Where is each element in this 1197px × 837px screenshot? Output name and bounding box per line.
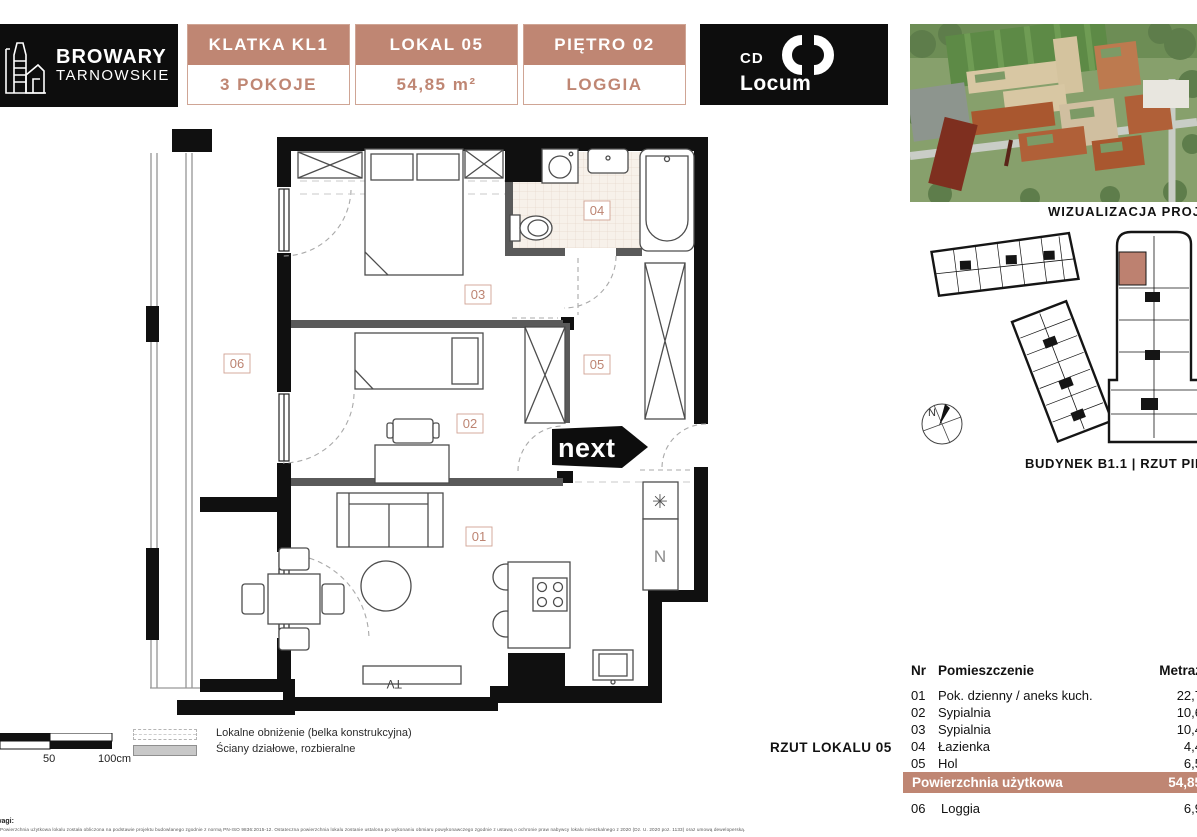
row-area: 4,4 [1137, 739, 1197, 754]
compass-icon: N [918, 398, 966, 448]
scale-50-label: 50 [43, 753, 55, 765]
room-label-04: 04 [590, 203, 604, 218]
row-area: 10,6 [1137, 705, 1197, 720]
visualization-caption: WIZUALIZACJA PROJEKTU [1048, 204, 1197, 219]
cd-locum-mark-icon [770, 34, 848, 76]
usable-area-label: Powierzchnia użytkowa [912, 775, 1063, 790]
fridge-symbol: ✳ [652, 492, 668, 513]
row-area: 10,4 [1137, 722, 1197, 737]
room-label-05: 05 [590, 357, 604, 372]
building-caption: BUDYNEK B1.1 | RZUT PIĘTRA 02 [1025, 456, 1197, 471]
row-area: 6,5 [1137, 756, 1197, 771]
appliance-symbol: N [654, 547, 666, 566]
header-box-lokal: LOKAL 05 54,85 m² [355, 24, 518, 105]
room-label-01: 01 [472, 529, 486, 544]
row-nr: 03 [911, 722, 937, 737]
loggia-label: LOGGIA [524, 65, 685, 104]
row-name: Łazienka [938, 739, 1143, 754]
room-label-06: 06 [230, 356, 244, 371]
pokoje-label: 3 POKOJE [188, 65, 349, 104]
header-box-klatka: KLATKA KL1 3 POKOJE [187, 24, 350, 105]
row-name: Hol [938, 756, 1143, 771]
header-name: Pomieszczenie [938, 663, 1143, 678]
legend-beam-swatch [133, 729, 197, 740]
row-name: Sypialnia [938, 705, 1143, 720]
floor-plan: TV ✳ N 01 02 03 04 05 06 next [125, 118, 720, 723]
pietro-label: PIĘTRO 02 [524, 25, 685, 65]
room-label-02: 02 [463, 416, 477, 431]
row-nr: 04 [911, 739, 937, 754]
notes-label: Uwagi: [0, 818, 14, 825]
usable-area-bar: Powierzchnia użytkowa 54,85 [903, 772, 1197, 793]
legend-beam-label: Lokalne obniżenie (belka konstrukcyjna) [216, 727, 412, 739]
header-area: Metraż [1137, 663, 1197, 678]
logo-line2: TARNOWSKIE [56, 68, 170, 84]
row-area: 6,9 [1137, 801, 1197, 816]
legend-partition-swatch [133, 745, 197, 756]
compass-n-label: N [928, 407, 936, 419]
row-nr: 02 [911, 705, 937, 720]
room-label-03: 03 [471, 287, 485, 302]
locum-text: Locum [740, 72, 811, 96]
klatka-label: KLATKA KL1 [188, 25, 349, 65]
floorplan-sheet: BROWARY TARNOWSKIE KLATKA KL1 3 POKOJE L… [0, 0, 1197, 837]
cd-locum-logo: CD Locum [700, 24, 888, 105]
tv-label: TV [387, 677, 402, 691]
row-name: Pok. dzienny / aneks kuch. [938, 688, 1143, 703]
scale-bar [0, 733, 130, 751]
plan-caption: RZUT LOKALU 05 [770, 740, 892, 755]
aerial-visualization [910, 24, 1197, 202]
area-label: 54,85 m² [356, 65, 517, 104]
usable-area-value: 54,85 [1137, 775, 1197, 790]
row-name: Loggia [941, 801, 1146, 816]
next-logo-text: next [558, 433, 616, 463]
brewery-icon [0, 35, 52, 97]
row-name: Sypialnia [938, 722, 1143, 737]
row-area: 22,7 [1137, 688, 1197, 703]
cd-text: CD [740, 50, 764, 67]
logo-line1: BROWARY [56, 47, 170, 68]
notes-text: Powierzchnia użytkowa lokalu została obl… [0, 827, 880, 832]
scale-100-label: 100cm [98, 753, 131, 765]
lokal-label: LOKAL 05 [356, 25, 517, 65]
header-nr: Nr [911, 663, 937, 678]
row-nr: 01 [911, 688, 937, 703]
legend-partition-label: Ściany działowe, rozbieralne [216, 743, 355, 755]
row-nr: 05 [911, 756, 937, 771]
header-box-pietro: PIĘTRO 02 LOGGIA [523, 24, 686, 105]
row-nr: 06 [911, 801, 937, 816]
brand-logo: BROWARY TARNOWSKIE [0, 24, 178, 107]
next-logo: next [552, 426, 648, 468]
